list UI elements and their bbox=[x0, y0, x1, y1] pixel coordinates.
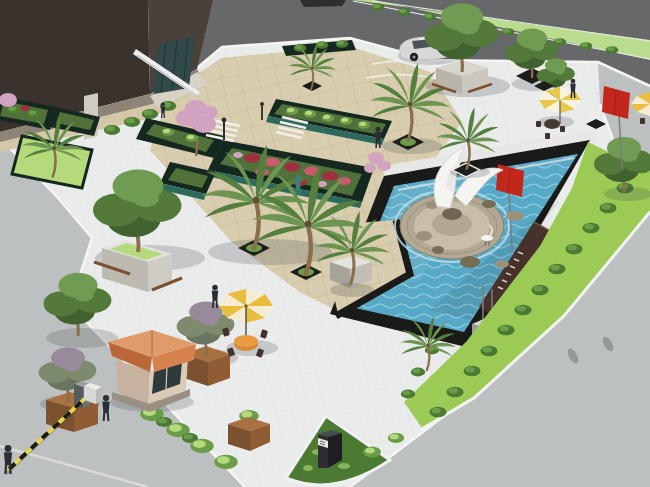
plaza-rendering: Aerial 3D architectural rendering of a l… bbox=[0, 0, 650, 487]
car-at-top-edge bbox=[300, 0, 346, 7]
rendering-canvas: Aerial 3D architectural rendering of a l… bbox=[0, 0, 650, 487]
